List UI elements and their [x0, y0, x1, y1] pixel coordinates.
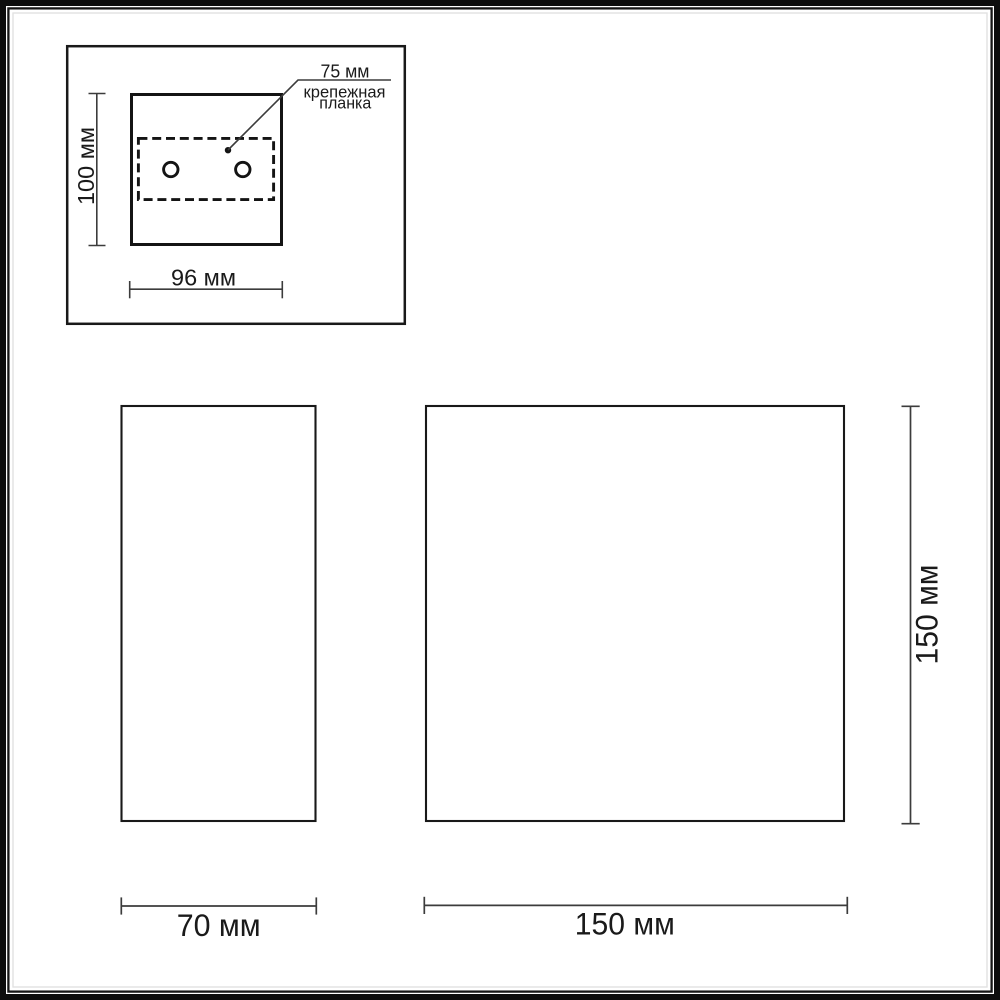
svg-text:96 мм: 96 мм — [171, 264, 236, 290]
svg-text:75 мм: 75 мм — [321, 60, 370, 81]
svg-text:150 мм: 150 мм — [908, 565, 944, 665]
svg-text:70 мм: 70 мм — [177, 907, 261, 943]
svg-text:планка: планка — [319, 94, 372, 113]
svg-text:100 мм: 100 мм — [73, 127, 99, 205]
svg-text:150 мм: 150 мм — [575, 906, 675, 942]
